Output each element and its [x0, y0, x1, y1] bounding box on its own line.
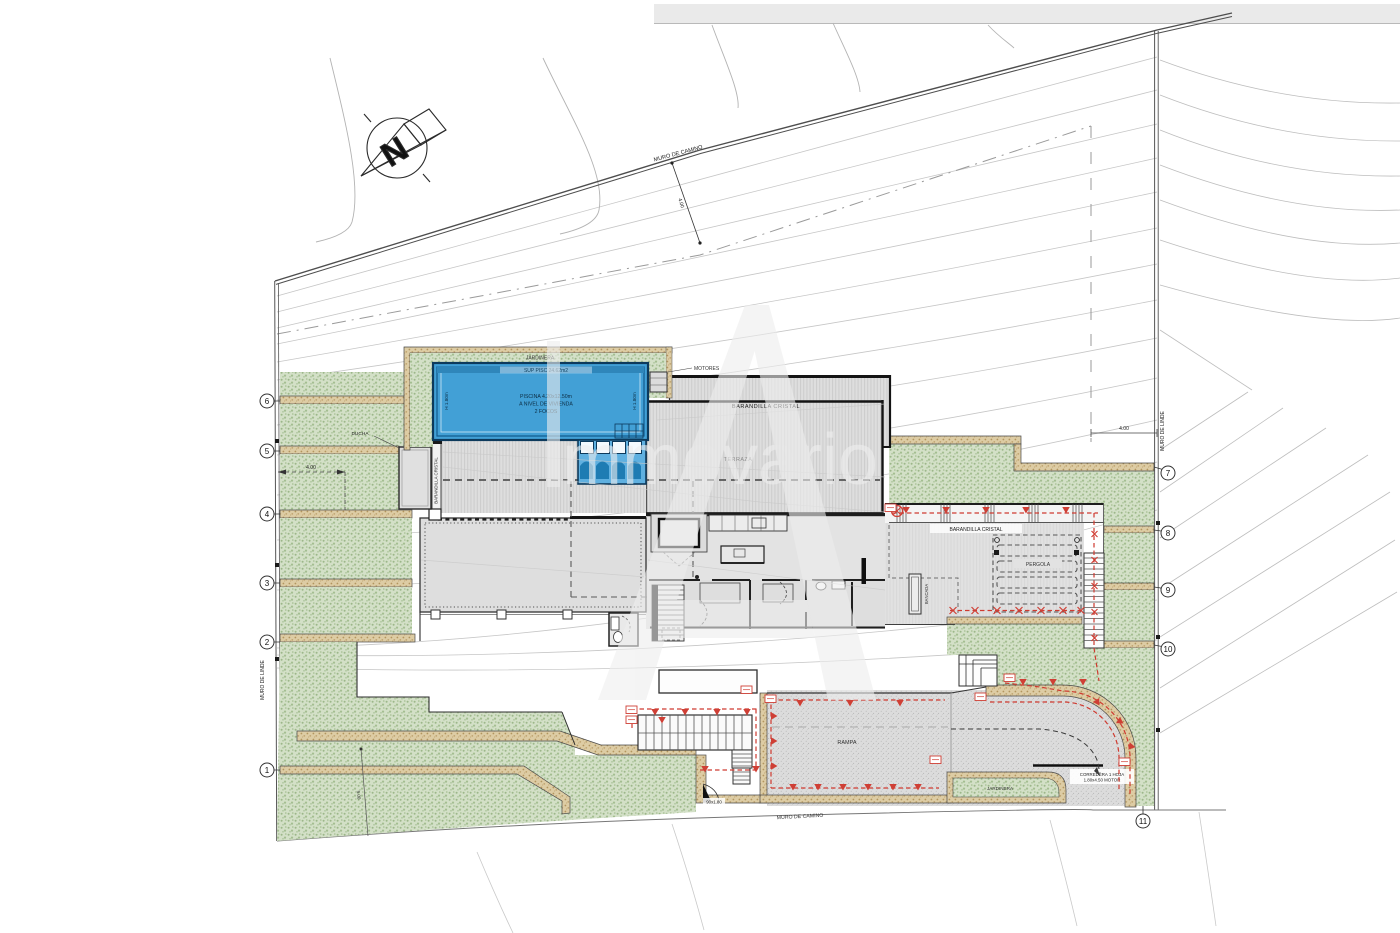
svg-text:2: 2 — [265, 638, 270, 647]
svg-text:6: 6 — [265, 397, 270, 406]
svg-text:CORREDERA 1 HOJA: CORREDERA 1 HOJA — [1080, 772, 1124, 777]
svg-text:4: 4 — [265, 510, 270, 519]
svg-text:9: 9 — [1166, 586, 1171, 595]
svg-text:H 1.80m: H 1.80m — [632, 392, 637, 410]
svg-text:BARANDILLA CRISTAL: BARANDILLA CRISTAL — [434, 457, 439, 504]
svg-text:JARDINERA: JARDINERA — [987, 786, 1014, 791]
svg-text:3: 3 — [265, 579, 270, 588]
svg-text:1.80x4.50 MOTOR: 1.80x4.50 MOTOR — [1084, 778, 1121, 783]
svg-text:BANCADA: BANCADA — [924, 584, 929, 604]
svg-text:MURO DE LINDE: MURO DE LINDE — [1160, 410, 1166, 450]
svg-text:1: 1 — [265, 766, 270, 775]
svg-text:90x1.80: 90x1.80 — [706, 800, 722, 805]
svg-text:MURO DE LINDE: MURO DE LINDE — [260, 659, 266, 699]
svg-text:RAMPA: RAMPA — [837, 740, 856, 746]
svg-text:PERGOLA: PERGOLA — [1026, 562, 1051, 568]
svg-text:mmovario: mmovario — [562, 420, 878, 500]
svg-text:11: 11 — [1139, 817, 1148, 826]
svg-text:4.00: 4.00 — [306, 465, 316, 471]
svg-text:5.00: 5.00 — [356, 790, 362, 800]
svg-text:H 1.80m: H 1.80m — [444, 392, 449, 410]
svg-text:BARANDILLA CRISTAL: BARANDILLA CRISTAL — [950, 527, 1003, 533]
svg-text:8: 8 — [1166, 529, 1171, 538]
svg-text:5: 5 — [265, 447, 270, 456]
svg-text:DUCHA: DUCHA — [351, 431, 369, 437]
svg-text:SUP PISC 24.62m2: SUP PISC 24.62m2 — [524, 368, 568, 374]
svg-text:A NIVEL DE VIVIENDA: A NIVEL DE VIVIENDA — [519, 402, 573, 408]
svg-text:10: 10 — [1164, 645, 1173, 654]
svg-text:MOTORES: MOTORES — [694, 366, 720, 372]
svg-text:PISCINA 4.20x12.50m: PISCINA 4.20x12.50m — [520, 394, 572, 400]
svg-text:7: 7 — [1166, 469, 1171, 478]
svg-text:4.00: 4.00 — [1119, 426, 1129, 432]
